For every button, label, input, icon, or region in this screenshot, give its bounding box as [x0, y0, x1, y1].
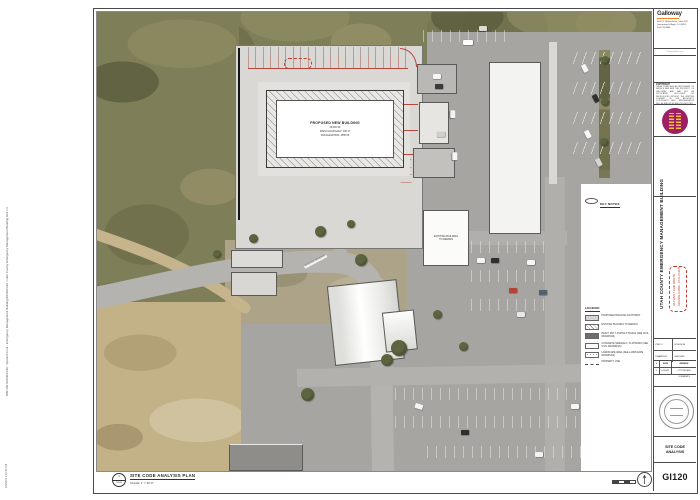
legend-item: LANDSCAPE AREA (SEE LANDSCAPE DRAWINGS) — [585, 352, 649, 358]
firm-logo-accent — [657, 18, 679, 19]
project-number-label: PROJ # — [654, 339, 673, 350]
existing-building-labeled: EXISTING BUILDING TO REMAIN — [423, 210, 469, 266]
tree — [347, 220, 355, 228]
view-marker-divider — [113, 480, 125, 481]
car — [433, 74, 441, 79]
notes-panel: KEY NOTES LEGEND: PROPOSED BUILDING FOOT… — [581, 184, 651, 471]
car — [461, 430, 469, 435]
car — [463, 40, 473, 45]
revision-table: # DATE REMARK 1 01/05/21 CITY REVIEW COM… — [654, 361, 696, 387]
file-path-edge-text: BIM 360://DC0024.90 - Spanish Fork - Eme… — [5, 207, 9, 396]
dimension-tick — [404, 104, 418, 105]
existing-stall-ticks — [248, 47, 408, 56]
firm-address-line: 303.770.8884 — [657, 27, 693, 30]
building-label-title: PROPOSED NEW BUILDING — [310, 121, 360, 125]
legend-swatch-existing — [585, 324, 599, 330]
car — [453, 152, 458, 160]
key-notes-title: KEY NOTES — [600, 202, 620, 208]
car — [477, 258, 485, 263]
legend-swatch-building — [585, 315, 599, 321]
plan-viewport: PROPOSED NEW BUILDING 30,000 SF MAIN FLO… — [96, 11, 652, 472]
legend-swatch-concrete — [585, 343, 599, 349]
building-label-elev: MAIN FLOOR ELEV: 100'-0" — [320, 130, 350, 133]
graphic-scale-bar — [612, 480, 636, 484]
emblem-bars — [676, 113, 681, 129]
view-scale: SCALE: 1" = 30'-0" — [130, 481, 195, 485]
tree — [381, 354, 393, 366]
sheet-title: SITE CODE ANALYSIS — [660, 445, 690, 455]
car — [437, 132, 445, 137]
tree — [601, 98, 609, 106]
seal-band — [670, 408, 683, 416]
tree — [600, 138, 608, 146]
project-number-value: DC0024.90 — [673, 344, 686, 346]
view-title-block: SITE CODE ANALYSIS PLAN SCALE: 1" = 30'-… — [130, 473, 195, 485]
site-entry-drive — [337, 248, 347, 266]
view-title-strip: 1 GI120 SITE CODE ANALYSIS PLAN SCALE: 1… — [96, 472, 650, 491]
tree — [459, 342, 468, 351]
car — [535, 452, 543, 457]
car — [539, 290, 547, 295]
emblem-block — [654, 105, 696, 137]
legend-item: HEAVY DUTY ASPHALT PAVING (SEE CIVIL DRA… — [585, 333, 649, 339]
key-notes-header: KEY NOTES — [585, 192, 620, 210]
parking-stripes — [573, 82, 647, 94]
firm-website: GallowayUS.com — [654, 49, 696, 56]
dimension-tick — [404, 130, 418, 131]
sheet-number: GI120 — [662, 472, 688, 482]
car — [479, 26, 487, 31]
car — [509, 288, 517, 293]
tree — [601, 56, 609, 64]
tree — [301, 388, 314, 401]
parking-stripes — [573, 112, 647, 124]
existing-building-label-2: TO REMAIN — [439, 238, 453, 241]
existing-building-north — [419, 102, 449, 144]
project-title-vertical: UTAH COUNTY EMERGENCY MANAGEMENT BUILDIN… — [659, 179, 664, 309]
car — [451, 110, 456, 118]
revision-row: 1 01/05/21 CITY REVIEW COMMENTS — [654, 368, 696, 375]
parking-stripes — [471, 270, 549, 282]
project-address-vertical-1: 364 WEST 3200 NORTH — [672, 274, 676, 306]
parking-stripes — [573, 142, 647, 154]
architect-seal-stamp — [659, 394, 694, 429]
proposed-building-label: PROPOSED NEW BUILDING 30,000 SF MAIN FLO… — [276, 100, 394, 158]
legend-item: EXISTING BUILDING TO REMAIN — [585, 324, 649, 330]
firm-logo: Galloway — [657, 11, 693, 17]
copyright-body: THESE PLANS ARE AN INSTRUMENT OF SERVICE… — [656, 86, 694, 105]
checked-label: CHECKED — [673, 356, 685, 358]
parking-stripes — [427, 446, 587, 458]
car — [527, 260, 535, 265]
parking-stripes — [471, 241, 549, 253]
entry-arc-annotation — [400, 48, 417, 67]
emblem-bars — [669, 113, 674, 129]
existing-building-north — [413, 148, 455, 178]
plot-stamp-text: 1/5/2021 2:41:32 PM — [5, 464, 8, 488]
existing-gabled-building — [321, 275, 422, 372]
tree — [315, 226, 326, 237]
keynote-oval-icon — [585, 198, 598, 205]
legend-item: CONCRETE SIDEWALK / FLATWORK (SEE CIVIL … — [585, 343, 649, 349]
legend: LEGEND: PROPOSED BUILDING FOOTPRINT EXIS… — [585, 296, 649, 368]
existing-warehouse — [489, 62, 541, 234]
legend-item: PROPERTY LINE — [585, 361, 649, 365]
view-title: SITE CODE ANALYSIS PLAN — [130, 473, 195, 480]
north-arrow-icon — [637, 472, 652, 487]
existing-shed — [231, 250, 283, 268]
car — [517, 312, 525, 317]
county-emblem-icon — [662, 108, 688, 134]
tree — [391, 340, 407, 356]
existing-building-north — [417, 64, 457, 94]
drawing-sheet: PROPOSED NEW BUILDING 30,000 SF MAIN FLO… — [93, 8, 698, 494]
legend-swatch-asphalt — [585, 333, 599, 339]
car — [491, 258, 499, 263]
project-info-grid: PROJ # DC0024.90 DRAWN BY CHECKED — [654, 339, 696, 361]
tree — [213, 250, 221, 258]
proposed-stall-ticks — [248, 56, 408, 69]
car — [435, 84, 443, 89]
parking-stripes — [471, 299, 549, 311]
legend-title: LEGEND: — [585, 306, 600, 312]
tree — [433, 310, 442, 319]
scale-segment — [630, 481, 636, 483]
project-number-row: PROJ # DC0024.90 — [654, 339, 696, 351]
architect-seal-block — [654, 387, 696, 437]
existing-shed — [231, 272, 277, 296]
legend-swatch-landscape — [585, 352, 599, 358]
tree — [355, 254, 367, 266]
copyright-block: COPYRIGHT: THESE PLANS ARE AN INSTRUMENT… — [654, 83, 696, 105]
project-address-vertical-2: SPANISH FORK, UTAH 84660 — [677, 267, 681, 306]
sheet-number-block: GI120 — [654, 463, 696, 491]
building-label-area: 30,000 SF — [329, 126, 340, 129]
legend-swatch-property-line — [585, 364, 599, 365]
revision-cloud — [284, 58, 312, 69]
building-label-pad: PAD ELEVATION: 4555.50 — [321, 134, 349, 137]
revision-header-row: # DATE REMARK — [654, 361, 696, 368]
sheet-title-block: SITE CODE ANALYSIS — [654, 437, 696, 463]
proposed-site-area: PROPOSED NEW BUILDING 30,000 SF MAIN FLO… — [235, 45, 423, 249]
proposed-building: PROPOSED NEW BUILDING 30,000 SF MAIN FLO… — [266, 90, 404, 168]
parking-stripes — [573, 52, 647, 64]
legend-item: PROPOSED BUILDING FOOTPRINT — [585, 315, 649, 321]
issue-block-empty — [654, 56, 696, 83]
view-marker: 1 GI120 — [112, 473, 126, 487]
car — [571, 404, 579, 409]
building-bottom-edge — [229, 444, 303, 471]
median-concrete — [549, 42, 557, 184]
tree — [249, 234, 258, 243]
property-line — [238, 48, 240, 220]
firm-logo-block: Galloway 6162 S. Willow Drive, Suite 320… — [654, 9, 696, 49]
